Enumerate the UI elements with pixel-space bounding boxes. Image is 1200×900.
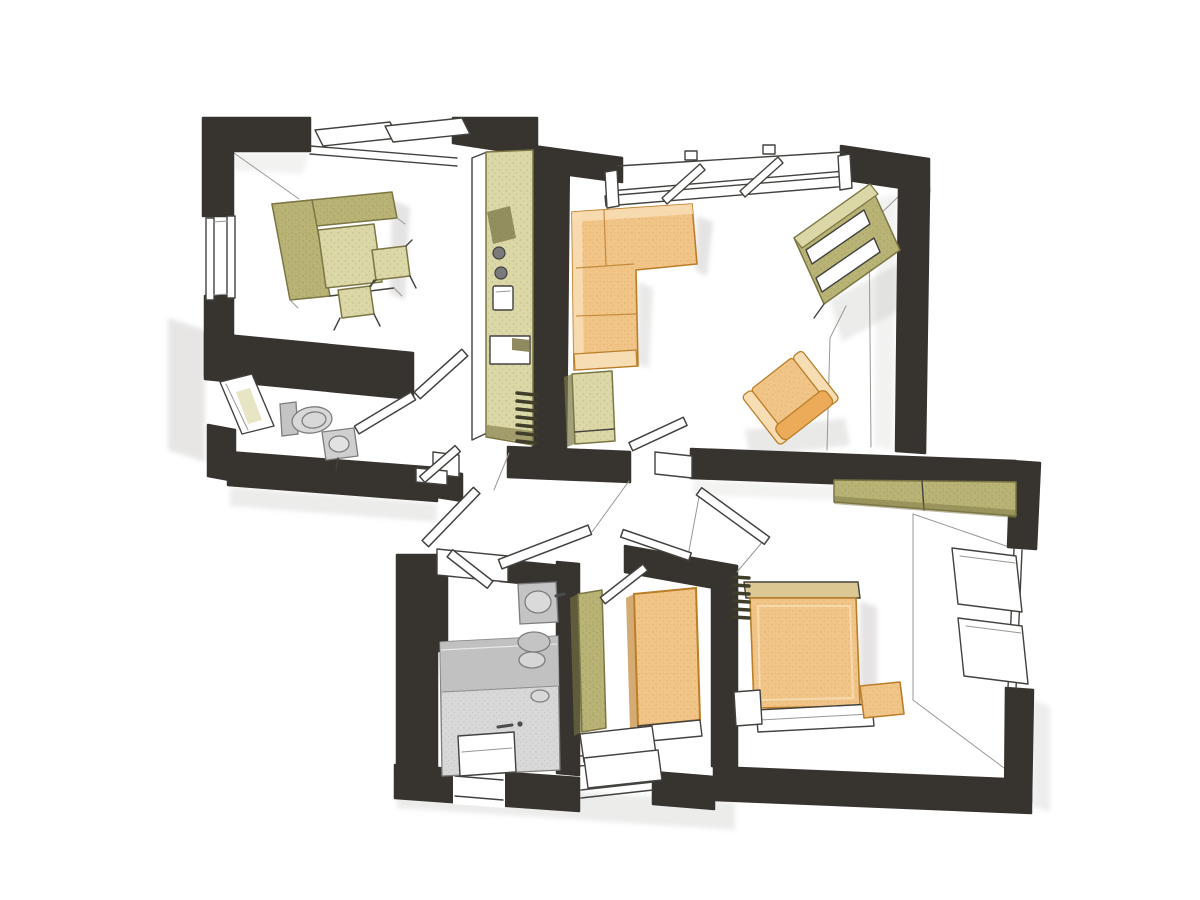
basin-bowl <box>525 591 551 613</box>
window-frame <box>206 218 214 300</box>
cabinet-front <box>572 371 615 444</box>
floor-plan-sketch: Hand-drawn apartment floor plan sketch, … <box>0 0 1200 900</box>
wardrobe-orange <box>626 588 702 742</box>
window-head-line <box>617 152 843 166</box>
door-leaf <box>354 392 415 434</box>
door-swing-line <box>592 481 629 532</box>
table-leg <box>410 276 416 288</box>
window-pane <box>952 548 1022 612</box>
wardrobe-front <box>634 588 700 726</box>
double-bed <box>734 582 904 732</box>
shadow <box>1032 700 1050 812</box>
living-room-window <box>605 145 852 208</box>
sofa-arm-band <box>572 213 584 370</box>
wardrobe-green <box>570 590 606 736</box>
cooktop-burner <box>493 247 505 259</box>
toilet-lid <box>519 652 545 668</box>
table-top <box>372 246 410 280</box>
step-box <box>458 732 516 776</box>
headboard <box>744 582 860 598</box>
counter-front-face <box>472 152 487 440</box>
wall-segment <box>508 447 630 482</box>
wardrobe-green-bedroom <box>834 480 1016 518</box>
sofa-leg <box>290 300 298 308</box>
window-tick <box>214 221 227 222</box>
drain <box>531 690 549 702</box>
basin-faucet <box>556 594 564 596</box>
tub-faucet <box>498 725 512 727</box>
wall-segment <box>397 555 447 775</box>
shadow <box>695 216 713 276</box>
window-pane <box>958 618 1028 684</box>
sketch-page: Hand-drawn apartment floor plan sketch, … <box>0 0 1200 900</box>
door-leaf <box>414 349 468 399</box>
shadow <box>233 153 310 174</box>
window-hinge <box>685 151 697 160</box>
nightstand-orange <box>860 682 904 718</box>
wall-base-line <box>913 514 1012 548</box>
table-leg <box>374 314 380 326</box>
window-hinge <box>763 145 775 154</box>
shelf-bracket <box>814 304 824 318</box>
bedroom-window <box>952 548 1028 689</box>
door-swing-line <box>737 540 764 572</box>
table-leg <box>334 318 340 330</box>
window-post <box>838 154 852 190</box>
toilet-bowl <box>518 632 550 652</box>
corner-sofa-orange <box>572 204 697 370</box>
counter-detail <box>512 338 530 352</box>
table-top <box>338 286 374 318</box>
window-frame <box>227 216 235 298</box>
wall-segment <box>714 767 1031 813</box>
cooktop-burner <box>495 267 507 279</box>
wall-segment <box>841 146 929 192</box>
basin-bowl <box>329 436 349 452</box>
tub-handle <box>517 721 522 726</box>
wall-segment <box>712 584 737 771</box>
window-post <box>605 170 619 208</box>
sofa-end-cap <box>574 350 637 370</box>
tall-cabinet <box>564 371 615 447</box>
wall-segment <box>533 150 569 451</box>
room-bathroom <box>440 582 564 776</box>
kitchen-sink <box>493 286 513 310</box>
wall-segment <box>896 187 929 453</box>
shadow <box>168 318 205 462</box>
shadow <box>637 282 653 368</box>
nightstand <box>734 690 762 726</box>
side-table <box>334 280 380 330</box>
study-left-window <box>206 216 235 300</box>
room-dressing-hall <box>570 588 702 788</box>
door-leaf <box>629 417 687 451</box>
mattress <box>750 598 860 708</box>
bench <box>580 726 662 788</box>
wardrobe-front <box>578 590 606 732</box>
door-leaf <box>498 525 591 569</box>
corner-edge-line <box>913 700 1004 768</box>
study-top-window <box>310 118 470 166</box>
box-top <box>458 732 516 776</box>
door-frame <box>655 452 692 478</box>
door-swing-line <box>688 497 699 556</box>
